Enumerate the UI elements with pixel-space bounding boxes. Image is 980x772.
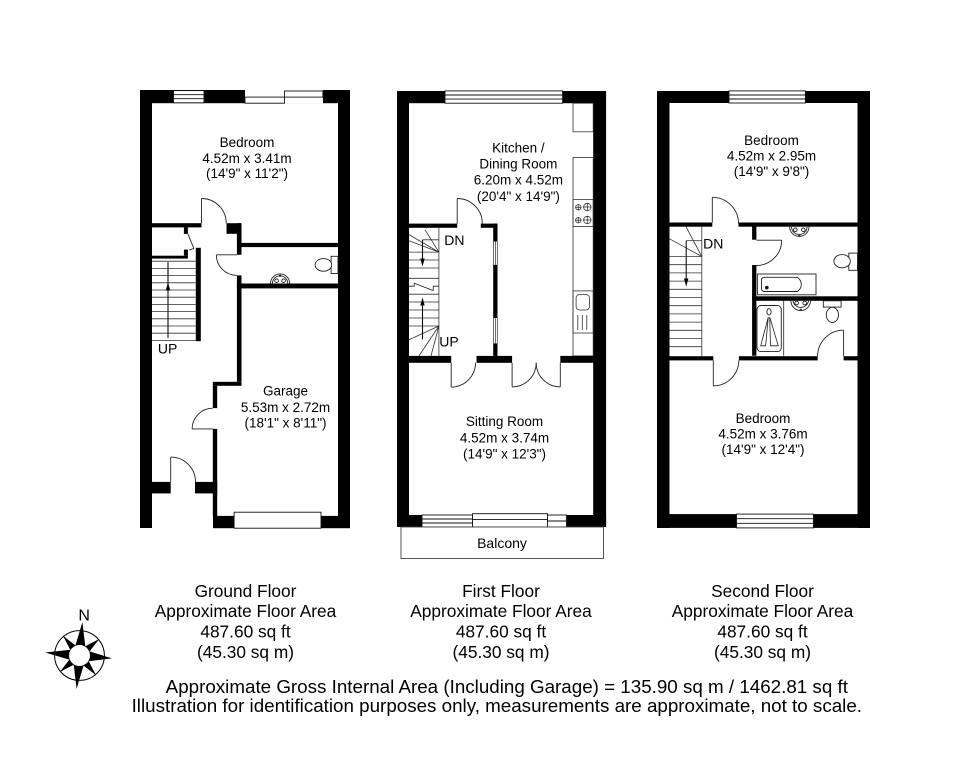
svg-text:487.60 sq ft: 487.60 sq ft — [456, 622, 547, 642]
svg-text:Dining Room: Dining Room — [479, 157, 557, 172]
svg-text:487.60 sq ft: 487.60 sq ft — [717, 622, 808, 642]
svg-text:4.52m x 3.74m: 4.52m x 3.74m — [460, 431, 549, 446]
svg-text:(45.30 sq m): (45.30 sq m) — [714, 642, 811, 662]
svg-text:(45.30 sq m): (45.30 sq m) — [452, 642, 549, 662]
svg-text:(45.30 sq m): (45.30 sq m) — [197, 642, 294, 662]
svg-text:(14'9" x 12'3"): (14'9" x 12'3") — [463, 447, 546, 462]
svg-text:(14'9" x 9'8"): (14'9" x 9'8") — [734, 164, 810, 179]
svg-text:Bedroom: Bedroom — [220, 135, 275, 150]
svg-text:Ground Floor: Ground Floor — [195, 581, 297, 601]
svg-text:Bedroom: Bedroom — [744, 133, 799, 148]
svg-text:Approximate Floor Area: Approximate Floor Area — [672, 601, 854, 621]
svg-text:Garage: Garage — [263, 384, 308, 399]
svg-text:Approximate Floor Area: Approximate Floor Area — [410, 601, 592, 621]
svg-text:487.60 sq ft: 487.60 sq ft — [200, 622, 291, 642]
svg-text:Second Floor: Second Floor — [711, 581, 814, 601]
svg-text:DN: DN — [703, 235, 723, 251]
svg-text:DN: DN — [444, 232, 464, 248]
svg-text:Balcony: Balcony — [477, 535, 527, 551]
svg-text:First Floor: First Floor — [462, 581, 540, 601]
svg-text:(20'4" x 14'9"): (20'4" x 14'9") — [477, 189, 560, 204]
svg-text:6.20m x 4.52m: 6.20m x 4.52m — [474, 173, 563, 188]
svg-text:4.52m x 3.76m: 4.52m x 3.76m — [718, 427, 807, 442]
svg-text:5.53m x 2.72m: 5.53m x 2.72m — [241, 400, 330, 415]
svg-text:4.52m x 2.95m: 4.52m x 2.95m — [727, 149, 816, 164]
svg-text:UP: UP — [158, 340, 177, 356]
svg-text:(14'9" x 12'4"): (14'9" x 12'4") — [721, 442, 804, 457]
svg-text:4.52m x 3.41m: 4.52m x 3.41m — [202, 151, 291, 166]
svg-text:Bedroom: Bedroom — [736, 411, 791, 426]
svg-text:Kitchen /: Kitchen / — [492, 141, 545, 156]
svg-text:Illustration for identificatio: Illustration for identification purposes… — [132, 695, 862, 716]
svg-text:(14'9" x 11'2"): (14'9" x 11'2") — [206, 166, 288, 181]
svg-text:Sitting Room: Sitting Room — [466, 414, 543, 429]
svg-text:N: N — [78, 608, 90, 625]
svg-text:Approximate Floor Area: Approximate Floor Area — [155, 601, 337, 621]
svg-text:(18'1" x 8'11"): (18'1" x 8'11") — [244, 416, 326, 431]
svg-text:UP: UP — [439, 334, 458, 350]
